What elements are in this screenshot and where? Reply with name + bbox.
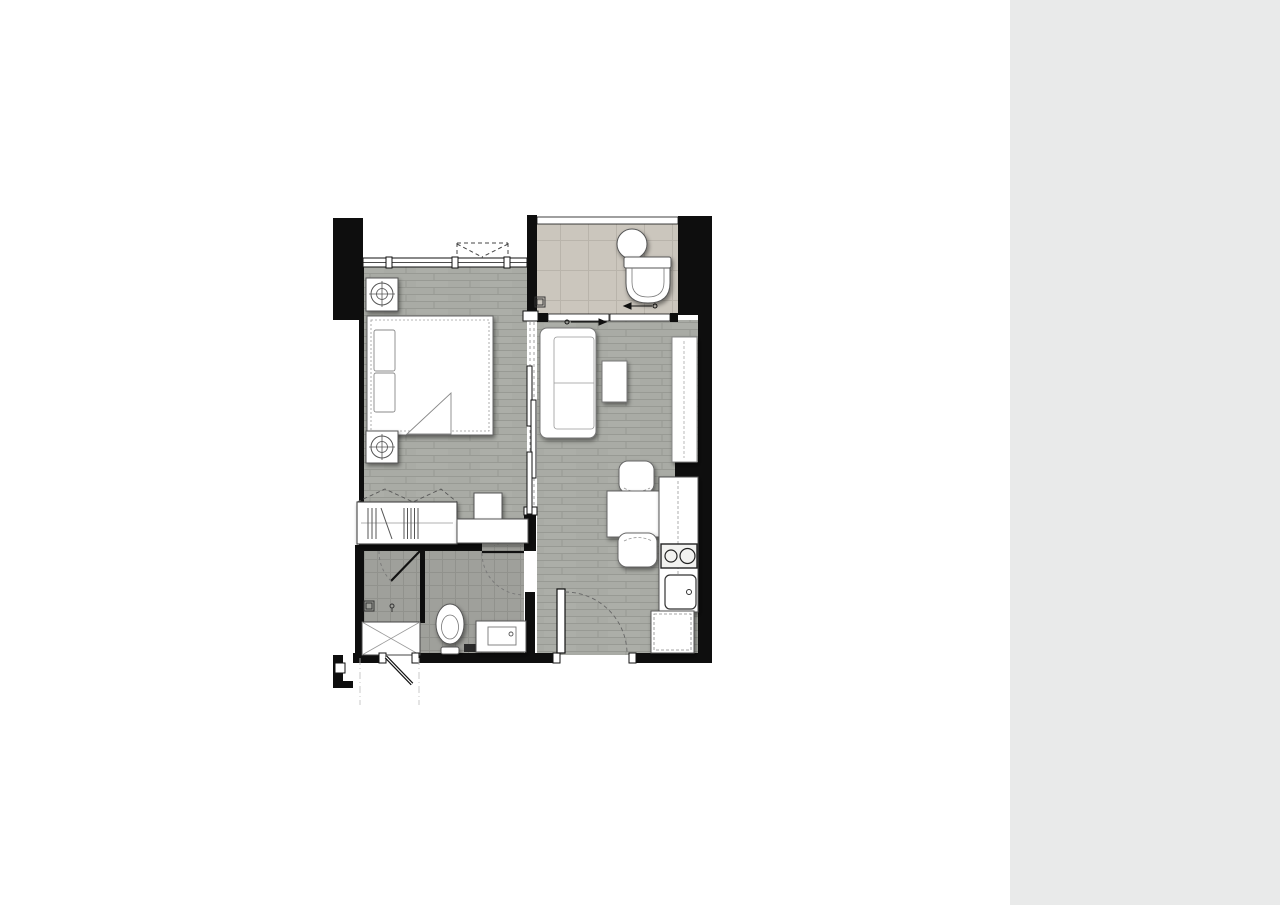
wall-top-right-block bbox=[678, 216, 712, 315]
low-cabinet bbox=[457, 519, 528, 543]
wall-right bbox=[698, 313, 712, 663]
stove bbox=[661, 544, 697, 568]
awning-window-symbol bbox=[457, 243, 508, 257]
coffee-table bbox=[602, 361, 627, 402]
vanity bbox=[476, 621, 526, 652]
refrigerator-cabinet bbox=[651, 611, 694, 653]
wall-left-column bbox=[333, 218, 363, 320]
brochure-page: LUXE ELEMENTS ΛΞRAS A1 35 sq.m. THEURBAN… bbox=[0, 0, 1280, 905]
bathroom-window bbox=[537, 217, 678, 224]
step-post bbox=[335, 663, 345, 673]
pillow-2 bbox=[374, 373, 395, 412]
kitchen-sink bbox=[665, 575, 696, 609]
floor-plan bbox=[328, 198, 714, 712]
side-panel: LUXE ELEMENTS ΛΞRAS A1 35 sq.m. THEURBAN… bbox=[1010, 0, 1280, 905]
wall-bottom-2 bbox=[414, 653, 558, 663]
washbasin-round bbox=[617, 229, 647, 259]
dining-chair-bottom bbox=[618, 533, 657, 567]
wall-kitchen-return bbox=[675, 462, 698, 478]
tv-cabinet bbox=[672, 337, 697, 462]
entrance-door-leaf bbox=[557, 589, 565, 653]
wall-step-2 bbox=[333, 681, 353, 688]
bath-stool bbox=[464, 644, 477, 652]
shower bbox=[362, 622, 420, 655]
wall-bath-inner bbox=[420, 551, 425, 623]
bedroom-stool bbox=[474, 493, 502, 519]
pillow-1 bbox=[374, 330, 395, 371]
